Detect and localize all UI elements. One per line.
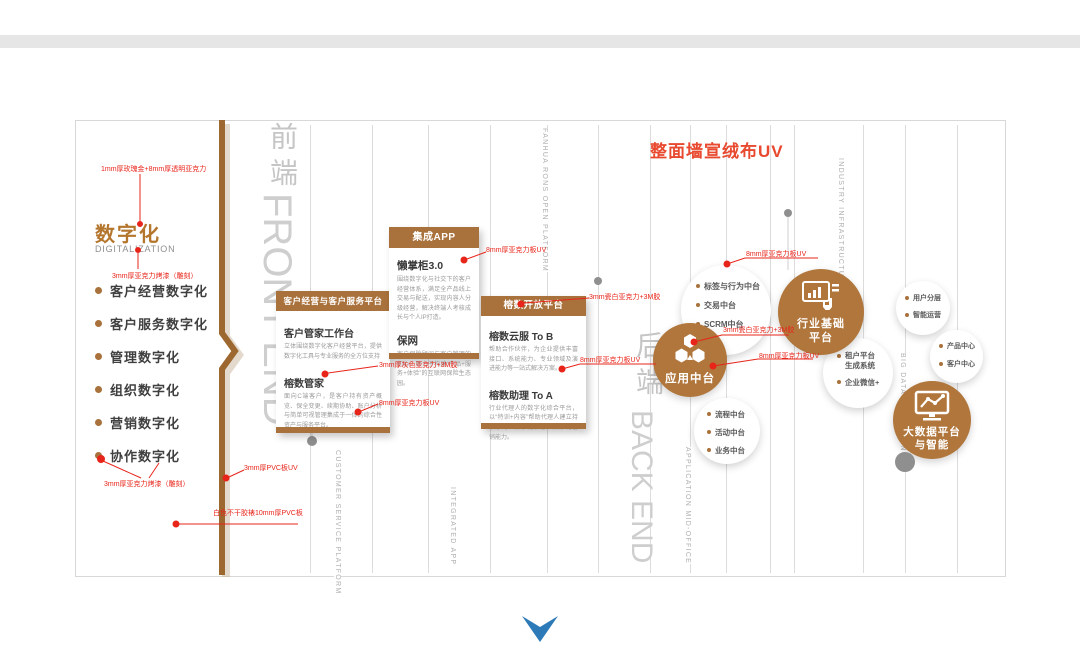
material-note: 3mm厚灰色亚克力+3M胶	[379, 360, 457, 370]
card-body: 榕数云服 To B 帮助合作伙伴，为企业提供丰富接口、系统能力、专业领域及演进能…	[481, 316, 586, 453]
bullet-icon	[707, 430, 711, 434]
circle-application-mid-platform: 应用中台	[653, 323, 727, 397]
circle-item: 企业微信+	[837, 377, 893, 388]
circle-item: 交易中台	[696, 300, 771, 311]
circle-big-data-platform: 大数据平台 与智能	[893, 381, 971, 459]
material-note: 3mm厚亚克力烤漆（雕刻）	[104, 479, 190, 489]
circle-item: 智能运营	[905, 310, 950, 320]
circle-item: 业务中台	[707, 445, 760, 456]
card-body: 懒掌柜3.0 围绕数字化与社交下的客户经营体系，满足全产品线上交易与配送，实现内…	[389, 248, 479, 399]
circle-label: 应用中台	[653, 370, 727, 386]
bullet-icon	[95, 452, 102, 459]
bullet-icon	[95, 353, 102, 360]
card-footer-bar	[481, 423, 586, 429]
card-footer-bar	[389, 353, 479, 359]
list-item: 客户经营数字化	[95, 283, 208, 298]
card-item-title: 客户管家工作台	[284, 325, 382, 340]
card-open-platform: 榕数开放平台 榕数云服 To B 帮助合作伙伴，为企业提供丰富接口、系统能力、专…	[481, 296, 586, 429]
whiteboard-chart-hand-icon	[778, 280, 864, 312]
card-item-desc: 帮助合作伙伴，为企业提供丰富接口、系统能力、专业领域及演进能力等一站式解决方案。	[489, 346, 578, 375]
bullet-icon	[696, 284, 700, 288]
material-note: 8mm厚亚克力板UV	[580, 355, 640, 365]
digitalization-title: 数字化	[95, 218, 161, 247]
card-item-title: 懒掌柜3.0	[397, 258, 471, 273]
bullet-icon	[95, 386, 102, 393]
list-item: 组织数字化	[95, 382, 208, 397]
card-body: 客户管家工作台 立体围绕数字化客户经营平台，提供数字化工具与专业服务的全方位支持…	[276, 311, 390, 442]
card-item-desc: 围绕数字化与社交下的客户经营体系，满足全产品线上交易与配送，实现内容人分级经营，…	[397, 276, 471, 324]
wall-material-note: 整面墙宣绒布UV	[650, 137, 784, 162]
grid-line	[598, 125, 599, 573]
circle-item: 活动中台	[707, 427, 760, 438]
material-note: 8mm厚亚克力板UV	[379, 398, 439, 408]
digitalization-subtitle: DIGITALIZATION	[95, 244, 175, 254]
back-end-en-watermark: BACK END	[624, 410, 658, 563]
circle-industry-infrastructure-platform: 行业基础 平台	[778, 269, 864, 355]
card-item-title: 榕数管家	[284, 375, 382, 390]
list-item: 协作数字化	[95, 448, 208, 463]
card-footer-bar	[276, 427, 390, 433]
circle-item: 客户中心	[939, 359, 983, 369]
grid-line	[905, 125, 906, 573]
card-item-desc: 立体围绕数字化客户经营平台，提供数字化工具与专业服务的全方位支持	[284, 343, 382, 362]
card-header: 客户经营与客户服务平台	[276, 291, 390, 311]
material-note: 3mm厚PVC板UV	[244, 463, 298, 473]
bullet-icon	[95, 287, 102, 294]
list-item: 营销数字化	[95, 415, 208, 430]
chart-monitor-icon	[893, 390, 971, 422]
material-note: 3mm厚亚克力烤漆（雕刻）	[112, 271, 198, 281]
material-note: 1mm厚玫瑰金+8mm厚透明亚克力	[101, 164, 206, 174]
label-customer-service-platform: CUSTOMER SERVICE PLATFORM	[334, 450, 341, 595]
circle-item: 用户分层	[905, 293, 950, 303]
material-note: 8mm厚亚克力板UV	[746, 249, 806, 259]
bullet-icon	[939, 344, 943, 348]
bullet-icon	[707, 448, 711, 452]
list-item: 管理数字化	[95, 349, 208, 364]
circle-item: 租户平台生成系统	[837, 351, 893, 371]
circle-item: 产品中心	[939, 341, 983, 351]
circle-product-customer: 产品中心 客户中心	[930, 330, 983, 383]
chevron-down-icon	[522, 616, 558, 647]
circle-item: 标签与行为中台	[696, 281, 771, 292]
hexagon-cluster-icon	[653, 333, 727, 365]
bullet-icon	[95, 419, 102, 426]
card-header: 榕数开放平台	[481, 296, 586, 316]
circle-item: 流程中台	[707, 409, 760, 420]
material-note: 8mm厚亚克力板UV	[486, 245, 546, 255]
circle-user-ops: 用户分层 智能运营	[896, 281, 950, 335]
card-header: 集成APP	[389, 227, 479, 248]
bullet-icon	[95, 320, 102, 327]
bullet-icon	[837, 380, 841, 384]
card-item-title: 榕数助理 To A	[489, 387, 578, 402]
bullet-icon	[696, 303, 700, 307]
material-note: 3mm瓷白亚克力+3M胶	[723, 325, 794, 335]
label-industry-infrastructure: INDUSTRY INFRASTRUCTURE	[837, 158, 844, 290]
front-end-cn-watermark: 前端	[262, 122, 302, 194]
card-integrated-app: 集成APP 懒掌柜3.0 围绕数字化与社交下的客户经营体系，满足全产品线上交易与…	[389, 227, 479, 359]
bullet-icon	[905, 313, 909, 317]
design-mockup-canvas: 前端 FRONT END 后端 BACK END FANHUA RONS OPE…	[0, 0, 1080, 649]
circle-process-center: 流程中台 活动中台 业务中台	[694, 398, 760, 464]
bullet-icon	[707, 412, 711, 416]
material-note: 白色不干胶裱10mm厚PVC板	[213, 508, 303, 518]
material-note: 8mm厚亚克力板UV	[759, 351, 819, 361]
card-item-title: 保网	[397, 333, 471, 348]
bullet-icon	[905, 296, 909, 300]
bullet-icon	[939, 362, 943, 366]
grid-line	[770, 125, 771, 573]
circle-label: 与智能	[893, 437, 971, 452]
top-gray-strip	[0, 35, 1080, 48]
label-application-mid-office: APPLICATION MID-OFFICE	[684, 447, 691, 564]
card-customer-platform: 客户经营与客户服务平台 客户管家工作台 立体围绕数字化客户经营平台，提供数字化工…	[276, 291, 390, 433]
digitalization-list: 客户经营数字化 客户服务数字化 管理数字化 组织数字化 营销数字化 协作数字化	[95, 283, 208, 481]
list-item: 客户服务数字化	[95, 316, 208, 331]
bullet-icon	[837, 354, 841, 358]
grid-line	[794, 125, 795, 573]
label-integrated-app: INTEGRATED APP	[449, 487, 456, 565]
card-item-desc: 面向C端客户，是客户持有资产概览、保全变更、续期协助、账户分析与简单可视管理集成…	[284, 393, 382, 431]
material-note: 3mm瓷白亚克力+3M胶	[589, 292, 660, 302]
card-item-title: 榕数云服 To B	[489, 328, 578, 343]
